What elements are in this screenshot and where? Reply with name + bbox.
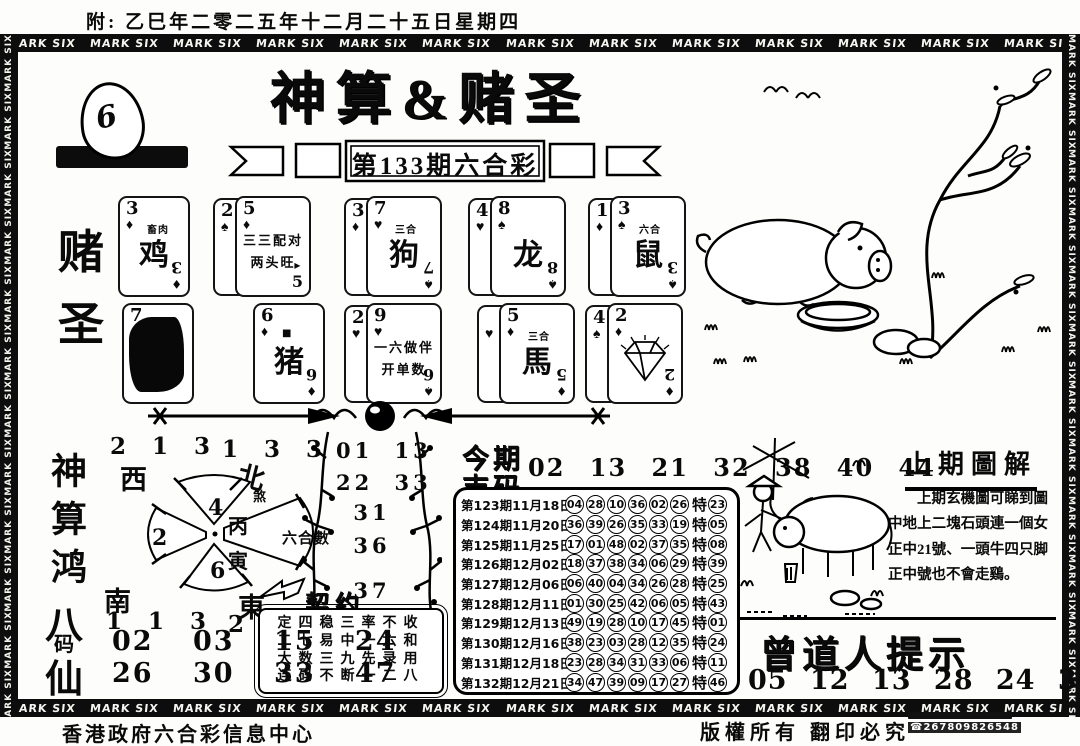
border-label: MARK SIX (1066, 611, 1076, 669)
card-rank: 6 (261, 308, 274, 324)
border-label: MARK SIX (90, 37, 160, 50)
circled-number: 12 (649, 633, 668, 652)
border-label: MARK SIX (4, 554, 14, 612)
circled-number: 36 (628, 495, 647, 514)
playing-card: 6♦■猪♦6 (253, 303, 325, 404)
circled-special-number: 46 (708, 673, 727, 692)
playing-card: 9♥一六做伴开单数♠6 (366, 303, 442, 404)
circled-number: 37 (586, 554, 605, 573)
grass-sprig-icon (930, 266, 948, 280)
compass-center-top: 丙 (228, 510, 248, 539)
birds-icon (762, 80, 822, 102)
result-row: 第123期11月18日042810360226特23 (461, 495, 734, 515)
draw-period: 第128期12月11日 (461, 594, 565, 613)
playing-card: 7 (122, 303, 194, 404)
grass-sprig-icon (742, 350, 760, 364)
card-bottom-number: 6 (306, 365, 317, 384)
card-rank: 4 (476, 203, 489, 219)
draw-period: 第126期12月02日 (461, 554, 565, 573)
border-label: MARK SIX (173, 37, 243, 50)
circled-number: 06 (565, 574, 584, 593)
circled-number: 28 (586, 653, 605, 672)
card-suit-icon: ♥ (485, 328, 493, 342)
circled-number: 34 (628, 574, 647, 593)
plum-number-row: 31 (336, 500, 408, 525)
special-label: 特 (692, 514, 707, 535)
playing-card: 3♦畜肉鸡♦3 (118, 196, 190, 297)
card-bottom-rank: ♠6 (423, 365, 434, 398)
card-bottom-number: 3 (667, 258, 678, 277)
card-bottom-rank: ♠3 (667, 258, 678, 291)
border-label: MARK SIX (588, 702, 658, 715)
circled-special-number: 08 (708, 535, 727, 554)
bama-char-bottom: 仙 (42, 648, 86, 703)
card-suit-icon: ♥ (476, 221, 484, 235)
circled-number: 35 (670, 535, 689, 554)
buffalo-scene (733, 436, 895, 622)
border-label: MARK SIX (754, 37, 824, 50)
result-row: 第124期11月20日363926353319特05 (461, 515, 734, 535)
border-label: MARK SIX (505, 702, 575, 715)
card-rank: 3 (126, 201, 139, 217)
result-row: 第131期12月18日232834313306特11 (461, 653, 734, 673)
result-row: 第127期12月06日064004342628特25 (461, 574, 734, 594)
card-bottom-suit-icon: ♠ (667, 277, 678, 291)
card-suit-icon: ♥ (352, 328, 360, 342)
result-row: 第130期12月16日382303281235特24 (461, 633, 734, 653)
border-label: MARK SIX (4, 380, 14, 438)
circled-number: 28 (607, 613, 626, 632)
card-bottom-number: 7 (423, 258, 434, 277)
circled-number: 23 (565, 653, 584, 672)
plum-number-row: 01 13 (336, 438, 408, 463)
card-rank: 2 (352, 310, 365, 326)
circled-number: 26 (649, 574, 668, 593)
card-phrase-line: 一六做伴 (368, 337, 440, 359)
circled-number: 25 (607, 594, 626, 613)
card-bottom-suit-icon: ♦ (664, 384, 675, 398)
circled-number: 04 (565, 495, 584, 514)
circled-number: 28 (628, 633, 647, 652)
circled-number: 26 (607, 515, 626, 534)
border-label: MARK SIX (754, 702, 824, 715)
border-label: MARK SIX (4, 149, 14, 207)
plum-number-row: 22 33 (336, 470, 408, 495)
left-label-gambler-1: 赌 (58, 216, 104, 282)
special-label: 特 (692, 534, 707, 555)
special-label: 特 (692, 553, 707, 574)
border-label: MARK SIX (339, 37, 409, 50)
result-row: 第125期11月25日170148023735特08 (461, 534, 734, 554)
card-bottom-suit-icon: ▸ (292, 258, 303, 272)
grass-sprig-icon (898, 352, 916, 366)
circled-number: 06 (670, 653, 689, 672)
special-label: 特 (692, 494, 707, 515)
circled-number: 29 (670, 554, 689, 573)
circled-number: 34 (565, 673, 584, 692)
circled-number: 42 (628, 594, 647, 613)
circled-number: 19 (670, 515, 689, 534)
circled-number: 03 (607, 633, 626, 652)
playing-card: 3♠六合鼠♠3 (610, 196, 686, 297)
playing-card: 5♦三三配对两头旺▸5 (235, 196, 311, 297)
draw-period: 第127期12月06日 (461, 574, 565, 593)
circled-number: 33 (649, 653, 668, 672)
card-bottom-suit-icon: ♠ (423, 277, 434, 291)
border-label: MARK SIX (339, 702, 409, 715)
result-row: 第132期12月21日344739091727特46 (461, 672, 734, 692)
border-label: MARK SIX (422, 702, 492, 715)
contract-arrow (258, 575, 306, 603)
card-suit-icon: ♠ (221, 221, 228, 235)
card-rank: 7 (374, 201, 387, 217)
pig-illustration (690, 200, 900, 308)
ink-blot (129, 317, 184, 392)
lastweek-title: 上期圖解 (905, 444, 1037, 491)
card-rank: 2 (221, 203, 234, 219)
special-label: 特 (692, 652, 707, 673)
circled-number: 34 (607, 653, 626, 672)
border-label: MARK SIX (256, 37, 326, 50)
circled-number: 33 (649, 515, 668, 534)
tips-divider (740, 617, 1056, 620)
circled-number: 04 (607, 574, 626, 593)
border-label: MARK SIX (1066, 380, 1076, 438)
circled-number: 19 (586, 613, 605, 632)
border-label: MARK SIX (4, 34, 14, 92)
card-suit-icon: ♦ (352, 221, 359, 235)
circled-special-number: 25 (708, 574, 727, 593)
circled-number: 39 (586, 515, 605, 534)
card-bottom-rank: ♦6 (306, 365, 317, 398)
circled-number: 38 (565, 633, 584, 652)
card-bottom-suit-icon: ♠ (547, 277, 558, 291)
grass-sprig-icon (712, 352, 730, 366)
grass-sprig-icon (1000, 340, 1018, 354)
circled-number: 27 (670, 673, 689, 692)
compass-petal-left: 2 (152, 525, 167, 551)
border-label: MARK SIX (837, 702, 907, 715)
divider-spears (140, 396, 620, 436)
draw-period: 第129期12月13日 (461, 613, 565, 632)
card-rank: 5 (507, 308, 520, 324)
circled-number: 09 (628, 673, 647, 692)
grass-sprig-icon (1036, 320, 1054, 334)
circled-number: 35 (628, 515, 647, 534)
result-row: 第129期12月13日491928101745特01 (461, 613, 734, 633)
fine-print-smudge (908, 712, 1012, 719)
border-label: MARK SIX (4, 438, 14, 496)
card-bottom-number: 8 (547, 258, 558, 277)
circled-number: 26 (670, 495, 689, 514)
footer-phone: ☎267809826548 (908, 722, 1021, 733)
card-bottom-rank: ♦2 (664, 365, 675, 398)
issue-banner: 第133期六合彩 (300, 146, 590, 182)
circled-number: 23 (586, 633, 605, 652)
card-suit-icon: ♦ (596, 221, 603, 235)
draw-period: 第124期11月20日 (461, 515, 565, 534)
card-bottom-rank: ♦5 (556, 365, 567, 398)
special-label: 特 (692, 672, 707, 693)
border-label: MARK SIX (4, 323, 14, 381)
circled-number: 39 (607, 673, 626, 692)
special-label: 特 (692, 573, 707, 594)
results-table: 第123期11月18日042810360226特23第124期11月20日363… (453, 487, 740, 695)
draw-period: 第123期11月18日 (461, 495, 565, 514)
tips-numbers: 05 12 13 28 24 30 46 (748, 665, 1080, 696)
bowl-illustration (795, 300, 881, 340)
footer-publisher: 香港政府六合彩信息中心 (62, 718, 315, 746)
compass-nums-tl: 2 1 3 (110, 433, 219, 460)
draw-period: 第132期12月21日 (461, 673, 565, 692)
circled-number: 01 (586, 535, 605, 554)
circled-number: 36 (565, 515, 584, 534)
circled-number: 38 (607, 554, 626, 573)
special-label: 特 (692, 612, 707, 633)
border-label: MARK SIX (671, 702, 741, 715)
border-label: MARK SIX (4, 496, 14, 554)
circled-special-number: 39 (708, 554, 727, 573)
card-suit-icon: ♠ (593, 328, 600, 342)
draw-period: 第125期11月25日 (461, 535, 565, 554)
footer-copyright: 版權所有 翻印必究 (700, 716, 910, 745)
plum-number-row: 36 (336, 533, 408, 558)
border-label: MARK SIX (671, 37, 741, 50)
grass-sprig-icon (703, 318, 721, 332)
circled-special-number: 11 (708, 653, 727, 672)
border-strip-left: MARK SIXMARK SIXMARK SIXMARK SIXMARK SIX… (0, 34, 18, 717)
border-label: MARK SIX (173, 702, 243, 715)
card-bottom-suit-icon: ♦ (171, 277, 182, 291)
special-label: 特 (692, 632, 707, 653)
border-label: MARK SIX (4, 265, 14, 323)
card-bottom-rank: ♦3 (171, 258, 182, 291)
circled-number: 17 (649, 613, 668, 632)
circled-number: 17 (565, 535, 584, 554)
date-note: 附: 乙巳年二零二五年十二月二十五日星期四 (86, 7, 521, 34)
playing-card: 2♦♦2 (607, 303, 683, 404)
circled-number: 02 (628, 535, 647, 554)
left-label-shensuan: 神算鸿 (40, 452, 92, 596)
circled-number: 18 (565, 554, 584, 573)
circled-number: 45 (670, 613, 689, 632)
circled-number: 40 (586, 574, 605, 593)
playing-card: 5♦三合馬♦5 (499, 303, 575, 404)
border-label: MARK SIX (505, 37, 575, 50)
newspaper-page: 附: 乙巳年二零二五年十二月二十五日星期四 MARK SIXMARK SIXMA… (0, 0, 1080, 746)
card-rank: 3 (352, 203, 365, 219)
playing-card: 7♥三合狗♠7 (366, 196, 442, 297)
card-rank: 8 (498, 201, 511, 217)
circled-special-number: 05 (708, 515, 727, 534)
circled-number: 28 (586, 495, 605, 514)
card-bottom-rank: ♠7 (423, 258, 434, 291)
result-row: 第126期12月02日183738340629特39 (461, 554, 734, 574)
circled-number: 28 (670, 574, 689, 593)
border-label: MARK SIX (4, 207, 14, 265)
card-rank: 5 (243, 201, 256, 217)
circled-number: 47 (586, 673, 605, 692)
border-label: MARK SIX (256, 702, 326, 715)
circled-number: 17 (649, 673, 668, 692)
border-label: MARK SIX (588, 37, 658, 50)
card-rank: 2 (615, 308, 628, 324)
card-phrase-line: 三三配对 (237, 230, 309, 252)
card-bottom-number: 5 (292, 272, 303, 291)
card-bottom-rank: ▸5 (292, 258, 303, 291)
circled-number: 06 (649, 554, 668, 573)
circled-number: 10 (607, 495, 626, 514)
circled-number: 05 (670, 594, 689, 613)
compass-petal-bottom: 6 (210, 558, 225, 584)
draw-period: 第131期12月18日 (461, 653, 565, 672)
bama-numbers-row1: 02 03 15 24 (112, 626, 397, 657)
circled-special-number: 43 (708, 594, 727, 613)
circled-number: 48 (607, 535, 626, 554)
result-row: 第128期12月11日013025420605特43 (461, 593, 734, 613)
lastweek-paragraph: 上期玄機圖可睇到圖中地上二塊石頭連一個女正中21號、一頭牛四只脚正中號也不會走鷄… (888, 487, 1048, 589)
circled-number: 35 (670, 633, 689, 652)
circled-special-number: 01 (708, 613, 727, 632)
card-bottom-number: 6 (423, 365, 434, 384)
border-label: MARK SIX (4, 92, 14, 150)
circled-number: 30 (586, 594, 605, 613)
playing-card: 8♠龙♠8 (490, 196, 566, 297)
circled-number: 49 (565, 613, 584, 632)
compass-petal-top: 4 (208, 495, 223, 521)
card-bottom-number: 2 (664, 365, 675, 384)
circled-number: 01 (565, 594, 584, 613)
circled-special-number: 23 (708, 495, 727, 514)
bama-numbers-row2: 26 30 33 47 (112, 658, 397, 689)
circled-number: 10 (628, 613, 647, 632)
card-bottom-number: 5 (556, 365, 567, 384)
circled-number: 34 (628, 554, 647, 573)
card-rank: 4 (593, 310, 606, 326)
border-label: MARK SIX (1066, 438, 1076, 496)
compass-center-bottom: 寅 (228, 545, 248, 574)
page-title: 神算&赌圣 (180, 54, 680, 135)
card-rank: 9 (374, 308, 387, 324)
border-label: MARK SIX (4, 611, 14, 669)
border-label: MARK SIX (1066, 496, 1076, 554)
circled-number: 06 (649, 594, 668, 613)
circled-number: 31 (628, 653, 647, 672)
border-label: MARK SIX (1066, 554, 1076, 612)
card-bottom-number: 3 (171, 258, 182, 277)
border-label: MARK SIX (422, 37, 492, 50)
left-label-gambler-2: 圣 (58, 288, 104, 354)
border-label: MARK SIX (90, 702, 160, 715)
card-rank: 1 (596, 203, 609, 219)
circled-number: 37 (649, 535, 668, 554)
special-label: 特 (692, 593, 707, 614)
card-bottom-rank: ♠8 (547, 258, 558, 291)
border-label: MARK SIX (4, 669, 14, 717)
draw-period: 第130期12月16日 (461, 633, 565, 652)
circled-special-number: 24 (708, 633, 727, 652)
card-rank: 3 (618, 201, 631, 217)
circled-number: 02 (649, 495, 668, 514)
